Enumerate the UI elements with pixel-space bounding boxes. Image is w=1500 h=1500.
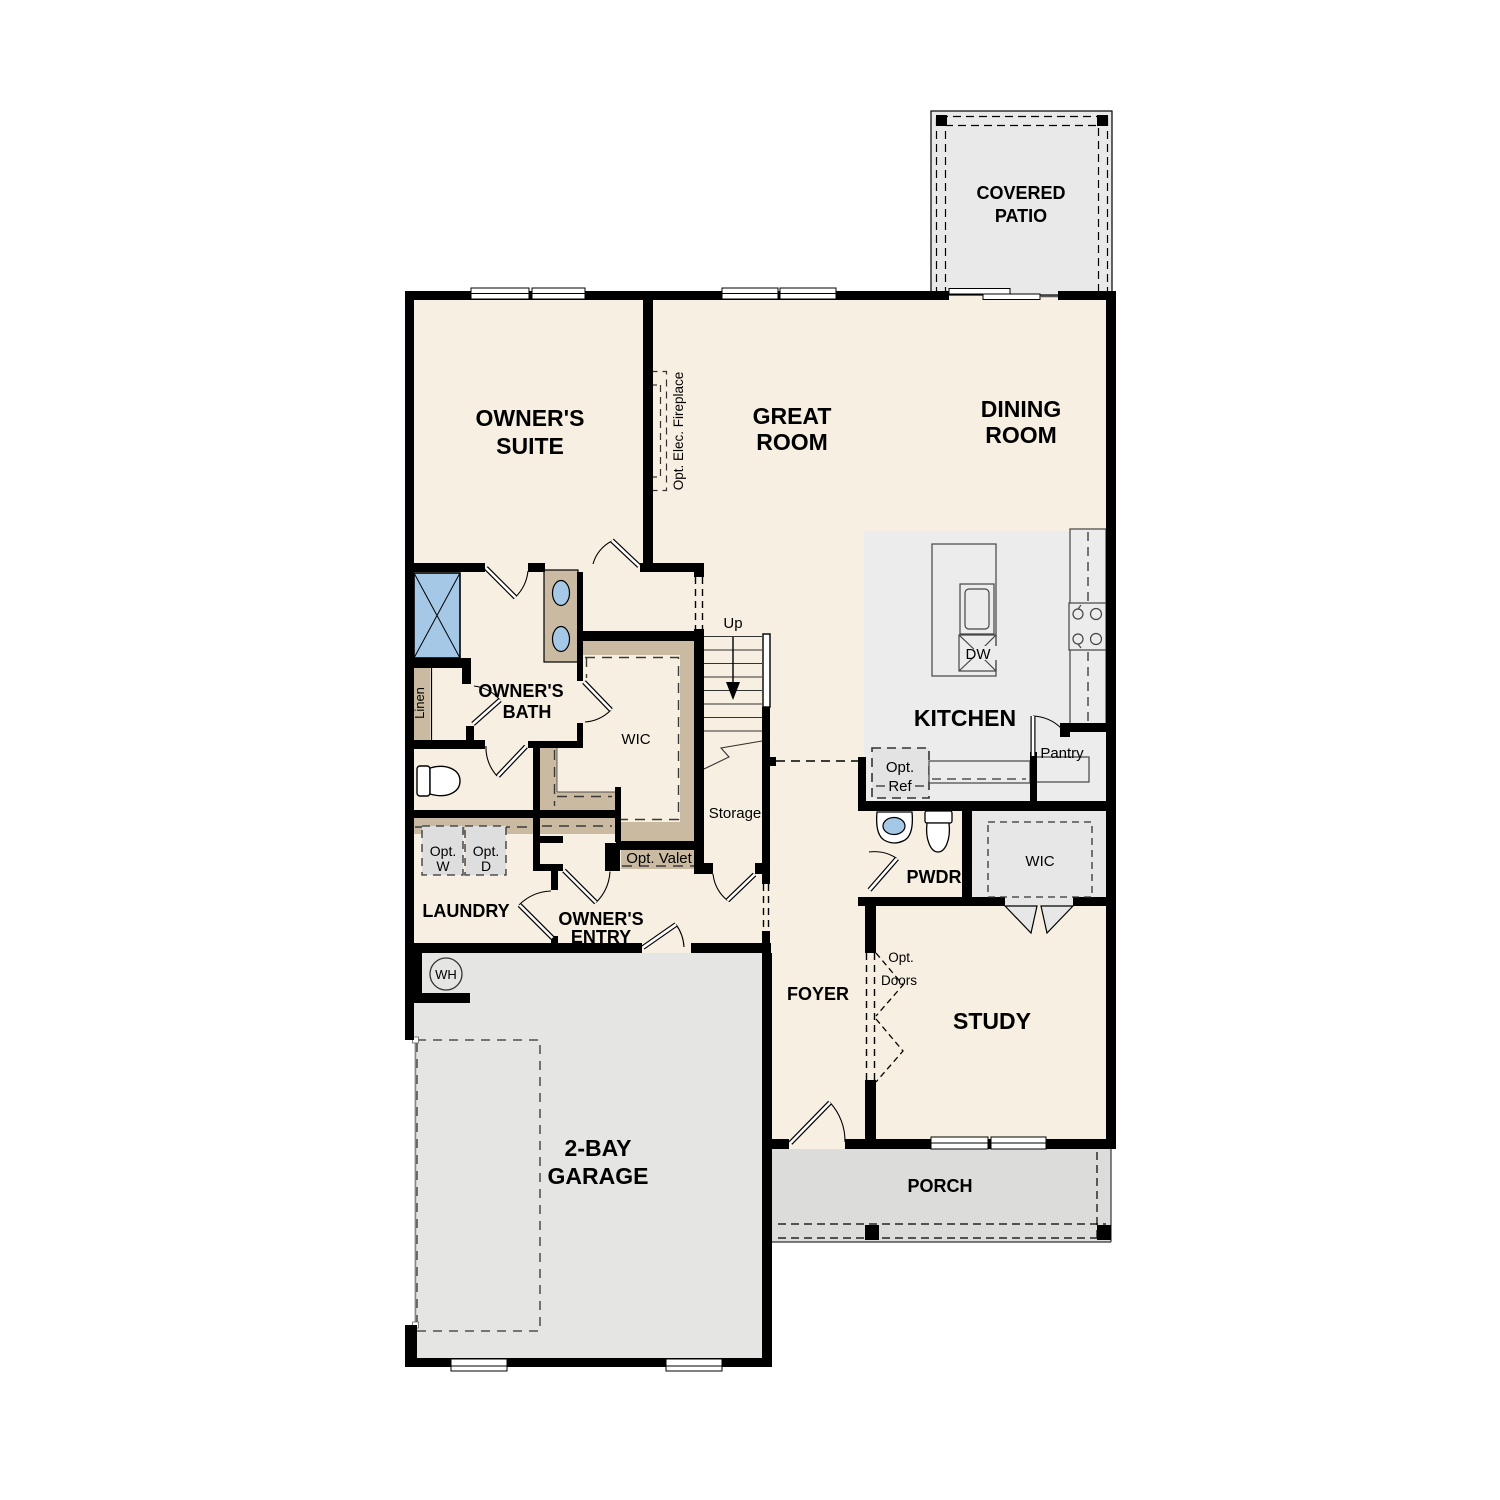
svg-text:OWNER'S: OWNER'S: [558, 909, 643, 929]
svg-text:Opt. Valet: Opt. Valet: [626, 850, 692, 867]
svg-text:OWNER'S: OWNER'S: [476, 405, 585, 431]
svg-text:ROOM: ROOM: [985, 422, 1057, 448]
svg-text:PORCH: PORCH: [907, 1176, 972, 1196]
svg-text:BATH: BATH: [503, 702, 552, 722]
svg-text:OWNER'S: OWNER'S: [478, 681, 563, 701]
svg-text:DW: DW: [966, 646, 992, 663]
svg-text:Doors: Doors: [881, 973, 917, 988]
svg-text:WIC: WIC: [621, 731, 650, 748]
svg-text:D: D: [481, 858, 491, 874]
svg-text:PATIO: PATIO: [995, 206, 1047, 226]
svg-text:KITCHEN: KITCHEN: [914, 705, 1016, 731]
svg-text:Storage: Storage: [709, 805, 762, 822]
svg-text:WIC: WIC: [1025, 853, 1054, 870]
svg-text:Opt.: Opt.: [473, 843, 499, 859]
svg-text:W: W: [436, 858, 450, 874]
svg-text:ROOM: ROOM: [756, 429, 828, 455]
svg-text:Opt.: Opt.: [430, 843, 456, 859]
svg-text:GREAT: GREAT: [753, 403, 832, 429]
svg-text:DINING: DINING: [981, 396, 1062, 422]
svg-text:Opt.: Opt.: [888, 950, 914, 965]
svg-text:PWDR: PWDR: [907, 867, 962, 887]
svg-text:Opt.: Opt.: [886, 759, 914, 776]
svg-text:COVERED: COVERED: [976, 183, 1065, 203]
svg-text:FOYER: FOYER: [787, 984, 849, 1004]
svg-text:SUITE: SUITE: [496, 433, 564, 459]
svg-text:Pantry: Pantry: [1040, 745, 1084, 762]
svg-text:LAUNDRY: LAUNDRY: [422, 901, 509, 921]
svg-text:GARAGE: GARAGE: [548, 1163, 649, 1189]
svg-text:Opt. Elec. Fireplace: Opt. Elec. Fireplace: [671, 372, 686, 491]
svg-text:ENTRY: ENTRY: [571, 927, 631, 947]
svg-text:Linen: Linen: [412, 687, 427, 719]
svg-text:Up: Up: [723, 615, 742, 632]
svg-text:STUDY: STUDY: [953, 1008, 1031, 1034]
svg-text:WH: WH: [435, 967, 457, 982]
svg-text:2-BAY: 2-BAY: [565, 1135, 632, 1161]
svg-text:Ref: Ref: [888, 778, 912, 795]
